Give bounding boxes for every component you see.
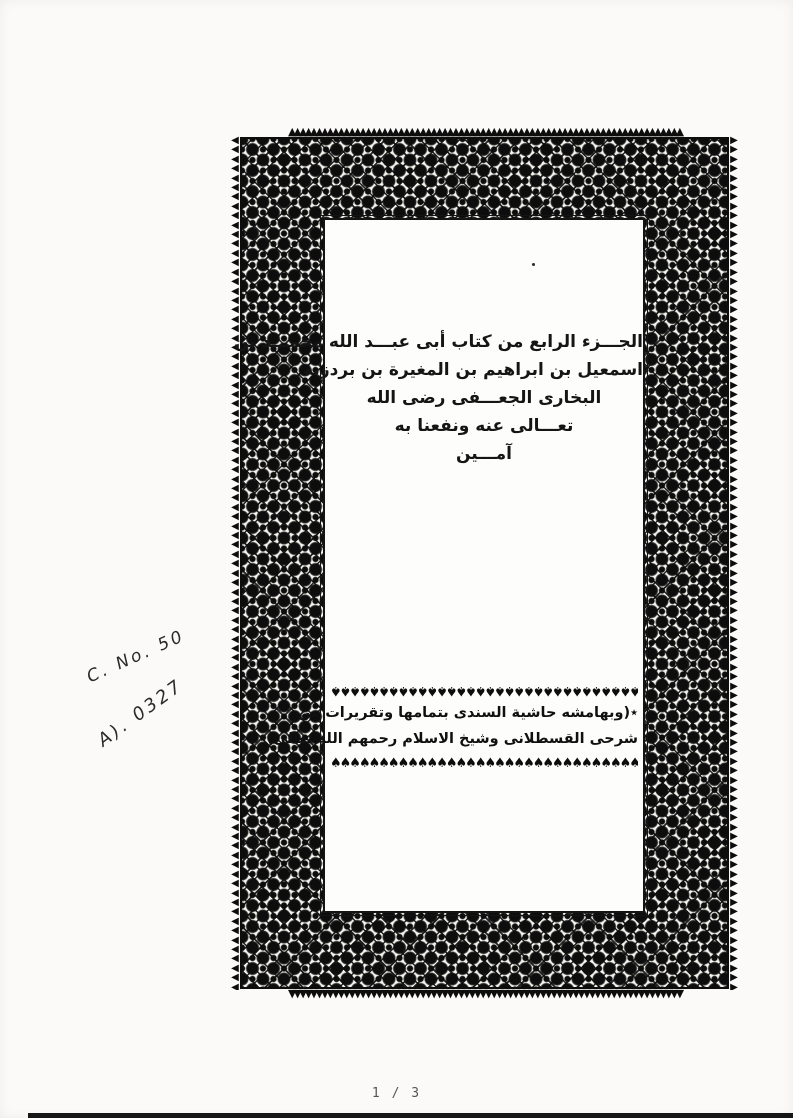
title-line-3: البخارى الجعـــفى رضى الله: [325, 384, 643, 412]
title-line-5: آمـــين: [325, 440, 643, 468]
margin-note-line-2: شرحى القسطلانى وشيخ الاسلام رحمهم الله ت…: [330, 726, 638, 752]
frame-teeth-right-icon: ▶ ▶ ▶ ▶ ▶ ▶ ▶ ▶ ▶ ▶ ▶ ▶ ▶ ▶ ▶ ▶ ▶ ▶ ▶ ▶ …: [727, 136, 741, 990]
decorative-frame: ▲▲▲▲▲▲▲▲▲▲▲▲▲▲▲▲▲▲▲▲▲▲▲▲▲▲▲▲▲▲▲▲▲▲▲▲▲▲▲▲…: [228, 125, 741, 1001]
margin-note-line-1: ٭(وبهامشه حاشية السندى بتمامها وتقريرات …: [330, 700, 638, 726]
title-line-2: اسمعيل بن ابراهيم بن المغيرة بن بردزبه: [325, 356, 643, 384]
margin-note-band: ♠♠♠♠♠♠♠♠♠♠♠♠♠♠♠♠♠♠♠♠♠♠♠♠♠♠♠♠♠♠♠♠♠♠♠♠♠♠♠♠…: [330, 680, 638, 774]
fleuron-row-bottom-icon: ♠♠♠♠♠♠♠♠♠♠♠♠♠♠♠♠♠♠♠♠♠♠♠♠♠♠♠♠♠♠♠♠♠♠♠♠♠♠♠♠…: [330, 754, 638, 774]
title-line-4: تعـــالى عنه ونفعنا به: [325, 412, 643, 440]
frame-teeth-bottom-icon: ▼▼▼▼▼▼▼▼▼▼▼▼▼▼▼▼▼▼▼▼▼▼▼▼▼▼▼▼▼▼▼▼▼▼▼▼▼▼▼▼…: [228, 987, 741, 1001]
title-line-1: الجـــزء الرابع من كتاب أبى عبـــد الله …: [325, 328, 643, 356]
title-block: الجـــزء الرابع من كتاب أبى عبـــد الله …: [325, 328, 643, 468]
scanned-document-page: ▲▲▲▲▲▲▲▲▲▲▲▲▲▲▲▲▲▲▲▲▲▲▲▲▲▲▲▲▲▲▲▲▲▲▲▲▲▲▲▲…: [0, 0, 793, 1118]
ink-speck: [532, 263, 535, 266]
title-panel: الجـــزء الرابع من كتاب أبى عبـــد الله …: [323, 218, 645, 913]
handwritten-accession-number-2: A). 0327: [94, 675, 188, 751]
fleuron-row-top-icon: ♠♠♠♠♠♠♠♠♠♠♠♠♠♠♠♠♠♠♠♠♠♠♠♠♠♠♠♠♠♠♠♠♠♠♠♠♠♠♠♠…: [330, 680, 638, 700]
page-indicator: 1 / 3: [0, 1086, 793, 1101]
bottom-edge-bar: [28, 1113, 793, 1118]
